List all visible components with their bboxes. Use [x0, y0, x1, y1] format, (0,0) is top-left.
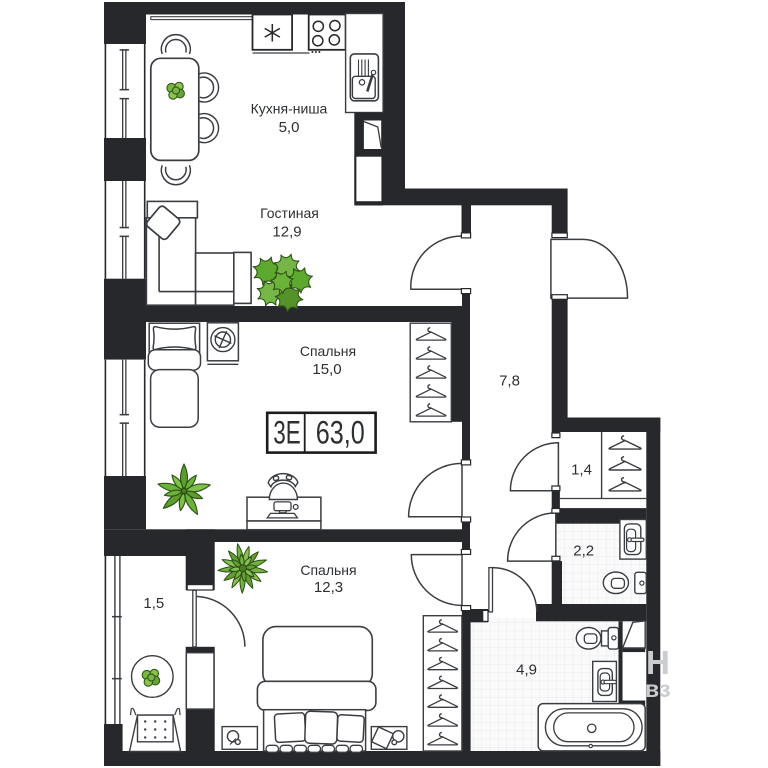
- svg-text:15,0: 15,0: [312, 361, 341, 378]
- svg-text:Спальня: Спальня: [300, 343, 356, 359]
- svg-text:Кухня-ниша: Кухня-ниша: [251, 100, 328, 116]
- svg-text:2,2: 2,2: [573, 542, 594, 559]
- svg-text:63,0: 63,0: [316, 414, 365, 450]
- svg-text:Спальня: Спальня: [300, 562, 356, 578]
- svg-text:12,3: 12,3: [314, 579, 343, 596]
- svg-text:4,9: 4,9: [516, 662, 537, 679]
- svg-text:12,9: 12,9: [272, 223, 301, 240]
- svg-text:7,8: 7,8: [499, 373, 520, 390]
- svg-text:3Е: 3Е: [273, 414, 301, 450]
- svg-text:Гостиная: Гостиная: [260, 205, 319, 221]
- svg-text:5,0: 5,0: [279, 119, 300, 136]
- svg-text:1,5: 1,5: [143, 595, 164, 612]
- svg-text:1,4: 1,4: [571, 461, 592, 478]
- svg-text:вз: вз: [645, 676, 671, 702]
